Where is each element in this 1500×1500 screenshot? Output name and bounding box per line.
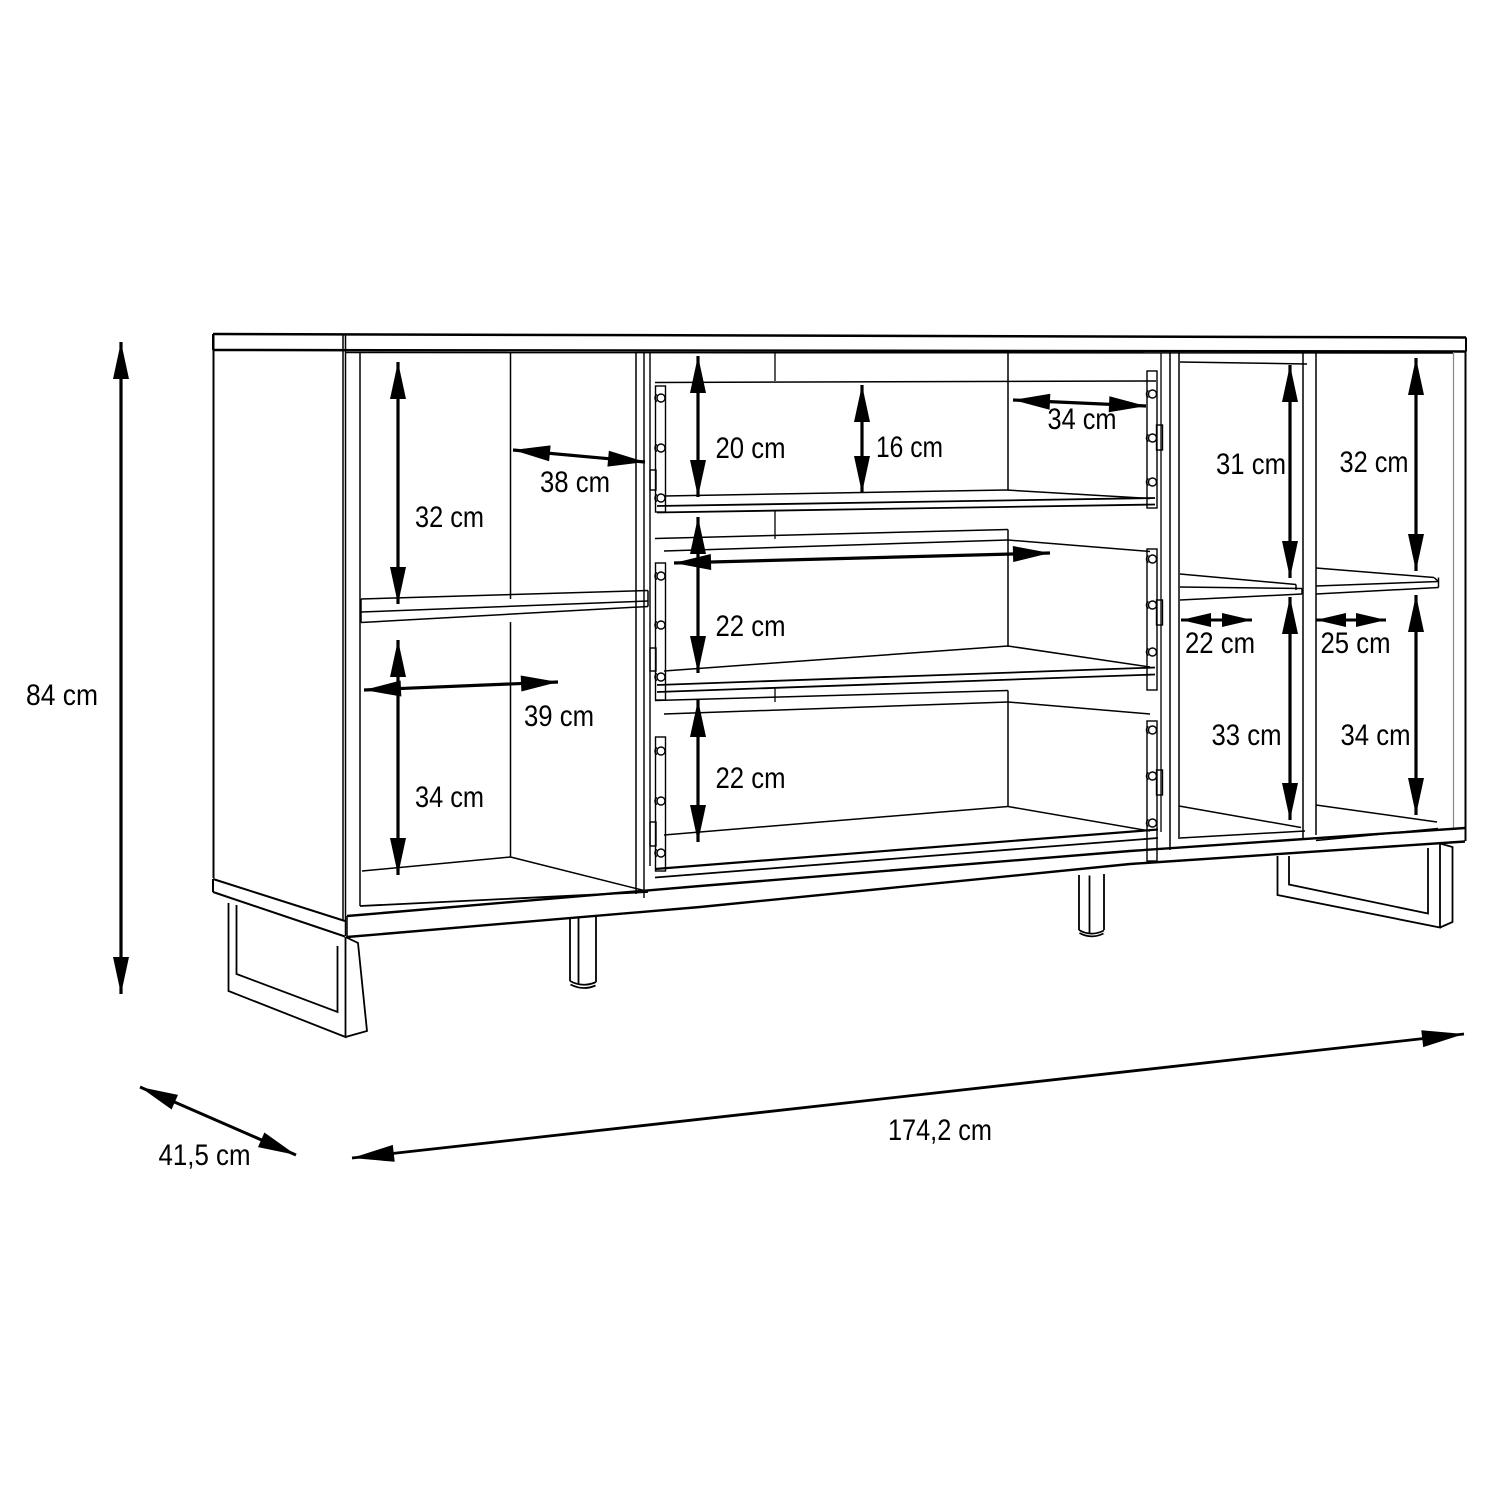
svg-text:32 cm: 32 cm <box>415 501 484 534</box>
svg-text:34 cm: 34 cm <box>1048 403 1117 436</box>
svg-text:20 cm: 20 cm <box>716 432 786 465</box>
svg-text:31 cm: 31 cm <box>1216 448 1286 481</box>
svg-text:39 cm: 39 cm <box>524 700 594 733</box>
svg-text:16 cm: 16 cm <box>876 431 943 464</box>
svg-text:34 cm: 34 cm <box>415 781 484 814</box>
svg-text:33 cm: 33 cm <box>1212 719 1282 752</box>
svg-text:32 cm: 32 cm <box>1340 446 1409 479</box>
svg-text:22 cm: 22 cm <box>1185 627 1255 660</box>
svg-text:34 cm: 34 cm <box>1341 719 1411 752</box>
svg-text:22 cm: 22 cm <box>716 610 786 643</box>
svg-text:22 cm: 22 cm <box>716 762 786 795</box>
svg-text:84 cm: 84 cm <box>26 679 98 712</box>
svg-text:25 cm: 25 cm <box>1321 627 1391 660</box>
svg-text:174,2 cm: 174,2 cm <box>888 1114 992 1147</box>
svg-text:41,5 cm: 41,5 cm <box>159 1139 251 1172</box>
svg-text:38 cm: 38 cm <box>540 466 610 499</box>
